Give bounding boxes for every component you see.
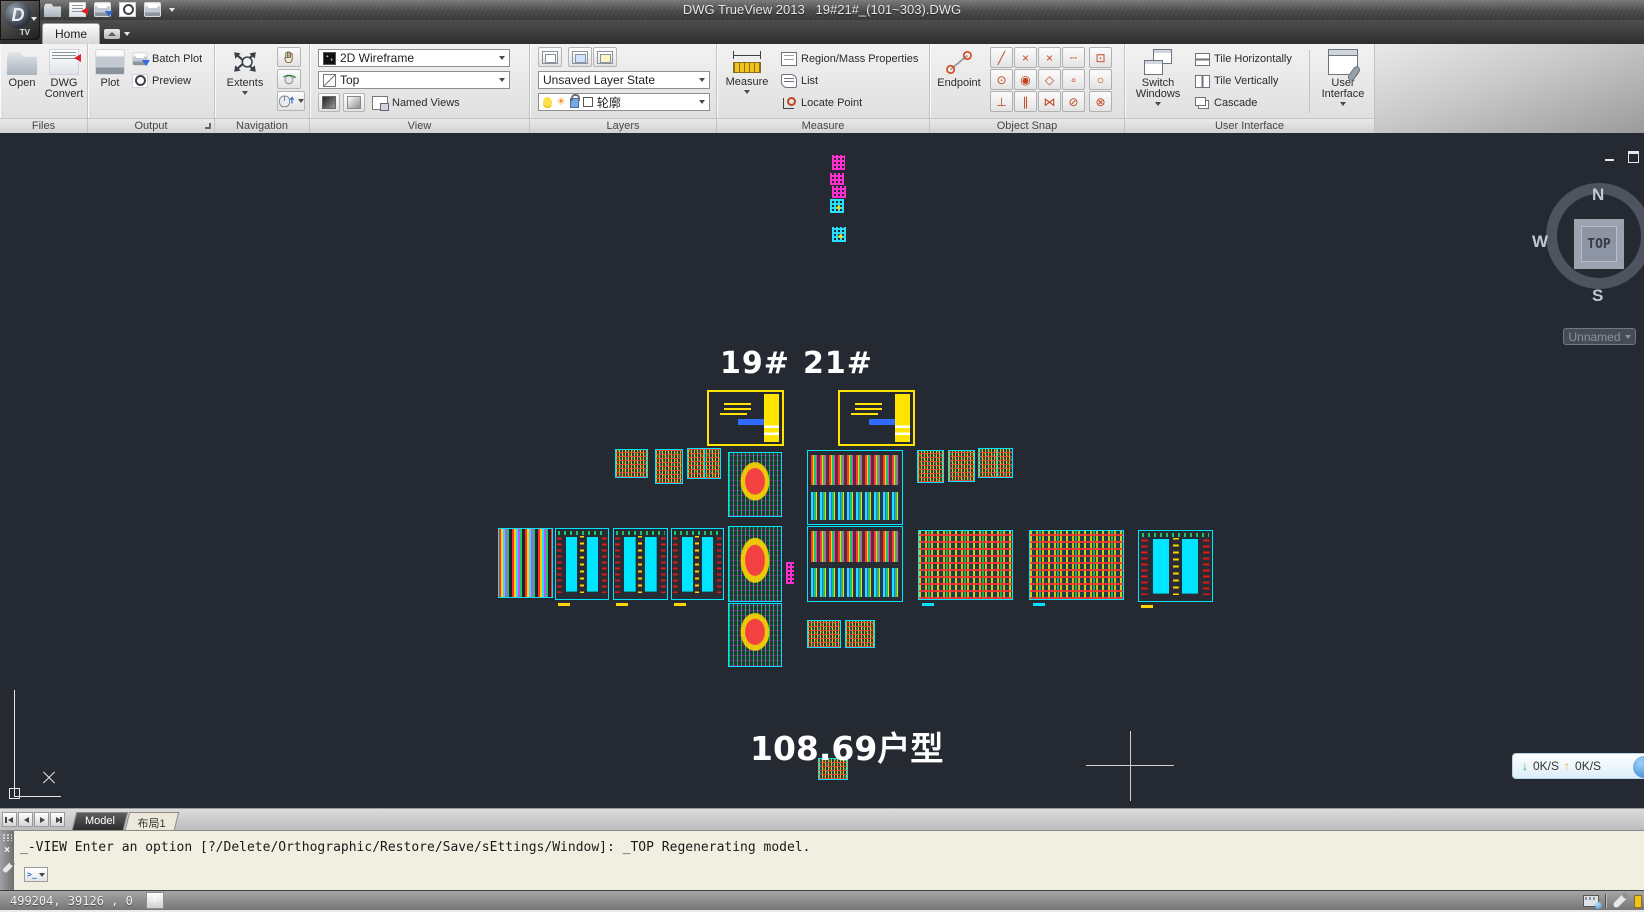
snap-midpoint[interactable]: ╱ [990, 47, 1013, 68]
panel-object-snap: Endpoint ╱××┄⊙◉◇∘⊥∥⋈⊘ ⊡○⊗ Object Snap [930, 44, 1125, 133]
command-window-grip[interactable] [0, 831, 14, 890]
chevron-down-icon [39, 873, 45, 877]
tile-horizontally-button[interactable]: Tile Horizontally [1195, 50, 1292, 68]
first-tab-button[interactable] [2, 812, 17, 827]
snap-magnet-off[interactable]: ⊗ [1089, 91, 1112, 112]
layer-state-icon [572, 51, 588, 64]
snap-tangent[interactable]: ○ [1089, 69, 1112, 90]
switch-windows-chevron-icon [1155, 102, 1161, 106]
tile-vertically-icon [1195, 75, 1210, 88]
close-command-icon[interactable] [1, 845, 13, 857]
cad-drawing [917, 450, 944, 483]
shaded-edges-view-button[interactable] [343, 93, 365, 112]
layer-on-icon [543, 97, 552, 108]
snap-extension[interactable]: ┄ [1062, 47, 1085, 68]
ribbon-state-icon [104, 29, 120, 39]
endpoint-label: Endpoint [937, 78, 980, 89]
panel-view: 2D Wireframe Top Named Views View [310, 44, 530, 133]
shaded-view-button[interactable] [318, 93, 340, 112]
unit-type-label: 108.69户型 [750, 732, 943, 765]
open-icon[interactable] [44, 2, 61, 17]
cad-drawing [671, 528, 724, 600]
window-title: DWG TrueView 2013 19#21#_(101~303).DWG [0, 2, 1644, 17]
snap-insert[interactable]: ⊡ [1089, 47, 1112, 68]
locate-point-icon [781, 96, 797, 110]
wireframe-icon [323, 52, 336, 65]
switch-windows-label: Switch Windows [1129, 78, 1187, 100]
block-21-label: 21# [803, 349, 873, 379]
ribbon-options-button[interactable] [104, 27, 138, 40]
named-view-dropdown[interactable]: Unnamed [1563, 328, 1636, 345]
zoom-scroll-button[interactable] [277, 91, 305, 111]
network-speed-overlay[interactable]: 0K/S 0K/S [1512, 753, 1644, 779]
endpoint-icon [944, 49, 974, 75]
plot-label: Plot [101, 78, 120, 89]
grip-dots-icon [2, 833, 12, 841]
panel-caption-view: View [310, 118, 529, 133]
viewcube-south[interactable]: S [1592, 287, 1603, 304]
zoom-extents-button[interactable]: Extents [221, 46, 269, 116]
tile-vertically-label: Tile Vertically [1214, 75, 1278, 87]
snap-intersection[interactable]: × [1014, 47, 1037, 68]
preview-icon [132, 74, 148, 88]
measure-label: Measure [726, 77, 769, 88]
app-menu-caret-icon [31, 17, 37, 21]
tile-horizontally-icon [1195, 53, 1210, 66]
panel-output: Plot Batch Plot Preview Output [88, 44, 215, 133]
named-views-label: Named Views [392, 97, 460, 109]
tab-model-label: Model [85, 815, 115, 827]
cad-drawing [807, 526, 903, 602]
title-bar: DWG TrueView 2013 19#21#_(101~303).DWG [0, 0, 1644, 20]
tile-horizontally-label: Tile Horizontally [1214, 53, 1292, 65]
cad-drawing [498, 528, 553, 598]
cascade-label: Cascade [1214, 97, 1257, 109]
layer-isolate-button[interactable] [593, 47, 617, 67]
layer-color-swatch [583, 97, 593, 107]
ribbon-tab-row: Home [0, 20, 1644, 44]
object-snap-grid: ╱××┄⊙◉◇∘⊥∥⋈⊘ [990, 47, 1085, 112]
list-icon [781, 74, 797, 88]
panel-divider [1309, 50, 1310, 113]
panel-layers: Unsaved Layer State ☀ 轮廓 Layers [530, 44, 717, 133]
panel-files: Open DWG Convert Files [0, 44, 88, 133]
region-icon [781, 52, 797, 66]
cad-drawing [948, 450, 975, 482]
named-views-icon [372, 96, 388, 110]
snap-geometric-center[interactable]: ◉ [1014, 69, 1037, 90]
tv-badge: TV [20, 28, 30, 37]
layer-state-button[interactable] [568, 47, 592, 67]
batch-plot-icon [132, 52, 148, 66]
minimize-drawing-button[interactable] [1603, 151, 1617, 163]
cad-drawing [832, 227, 846, 242]
status-settings-icon[interactable] [1612, 893, 1628, 909]
restore-drawing-button[interactable] [1626, 150, 1640, 162]
cad-drawing [613, 528, 668, 600]
dwg-convert-button[interactable]: DWG Convert [42, 46, 86, 116]
print-icon[interactable] [144, 2, 161, 17]
ucs-x-label [42, 771, 56, 785]
open-button[interactable]: Open [3, 46, 41, 116]
next-tab-button[interactable] [34, 812, 49, 827]
view-cube[interactable]: N W S E TOP [1546, 183, 1644, 289]
snap-quadrant[interactable]: ◇ [1038, 69, 1061, 90]
named-view-value: Unnamed [1568, 330, 1620, 344]
snap-perpendicular[interactable]: ⊥ [990, 91, 1013, 112]
command-history: _-VIEW Enter an option [?/Delete/Orthogr… [20, 840, 1634, 856]
endpoint-snap-button[interactable]: Endpoint [932, 46, 986, 116]
snap-center[interactable]: ⊙ [990, 69, 1013, 90]
viewcube-top-label: TOP [1581, 226, 1617, 262]
preview-button[interactable]: Preview [132, 72, 191, 90]
visual-style-value: 2D Wireframe [340, 51, 414, 65]
panel-navigation: Extents [215, 44, 310, 133]
crosshair-toggle-button[interactable] [146, 892, 164, 909]
batch-plot-button[interactable]: Batch Plot [132, 50, 202, 68]
previous-tab-button[interactable] [18, 812, 33, 827]
cad-drawing [707, 390, 784, 446]
object-snap-extra-column: ⊡○⊗ [1089, 47, 1112, 112]
layer-properties-button[interactable] [538, 47, 562, 67]
cad-drawing [687, 448, 721, 479]
status-bar-tray [1583, 891, 1644, 911]
viewcube-north[interactable]: N [1592, 186, 1604, 203]
quick-access-toolbar [44, 2, 175, 17]
command-window: _-VIEW Enter an option [?/Delete/Orthogr… [0, 830, 1644, 890]
tray-notification-icon[interactable] [1634, 895, 1642, 908]
cad-drawing [555, 528, 609, 600]
ucs-origin-box [9, 788, 20, 799]
pan-button[interactable] [277, 47, 301, 67]
cad-drawing [728, 603, 782, 667]
dwg-convert-label: DWG Convert [42, 78, 86, 100]
dwg-convert-icon[interactable] [69, 2, 86, 17]
user-interface-chevron-icon [1340, 102, 1346, 106]
open-label: Open [9, 78, 36, 89]
chevron-down-icon [699, 78, 705, 82]
preview-label: Preview [152, 75, 191, 87]
command-settings-icon[interactable] [2, 861, 14, 873]
view-value: Top [340, 73, 359, 87]
view-cube-icon [323, 74, 336, 87]
last-tab-button[interactable] [50, 812, 65, 827]
cad-drawing [728, 452, 782, 517]
tab-model[interactable]: Model [72, 812, 128, 830]
chevron-down-icon [1625, 335, 1631, 339]
crosshair-icon [150, 896, 160, 905]
layer-unlock-icon [570, 98, 579, 108]
network-monitor-icon[interactable] [1633, 756, 1644, 778]
panel-caption-output: Output [88, 118, 214, 133]
layer-dropdown[interactable]: ☀ 轮廓 [538, 93, 710, 111]
measure-chevron-icon [744, 90, 750, 94]
ucs-x-axis [14, 796, 61, 797]
cad-drawing [786, 562, 794, 584]
visual-style-dropdown[interactable]: 2D Wireframe [318, 49, 510, 67]
measure-ruler-icon [731, 50, 763, 74]
dwg-convert-icon [49, 49, 79, 75]
output-dialog-launcher-icon[interactable] [205, 123, 211, 129]
download-arrow-icon [1522, 759, 1528, 773]
orbit-button[interactable] [277, 69, 301, 89]
cad-drawing [832, 155, 845, 170]
tile-vertically-button[interactable]: Tile Vertically [1195, 72, 1278, 90]
ribbon-empty-area [1375, 44, 1644, 133]
panel-caption-measure: Measure [717, 118, 929, 133]
snap-none[interactable]: ⊘ [1062, 91, 1085, 112]
layer-state-dropdown[interactable]: Unsaved Layer State [538, 71, 710, 89]
prompt-icon [27, 870, 37, 879]
tab-home[interactable]: Home [42, 23, 100, 44]
tab-layout1-label: 布局1 [137, 815, 165, 831]
chevron-down-icon [499, 56, 505, 60]
cad-drawing [838, 390, 915, 446]
cad-drawing [830, 199, 844, 213]
user-interface-button[interactable]: User Interface [1315, 46, 1371, 116]
chevron-down-icon [499, 78, 505, 82]
snap-node[interactable]: ∘ [1062, 69, 1085, 90]
user-interface-icon [1328, 49, 1358, 75]
divider [1605, 894, 1606, 908]
plot-printer-icon [95, 49, 125, 75]
panel-caption-layers: Layers [530, 118, 716, 133]
list-button[interactable]: List [781, 72, 818, 90]
plot-button[interactable]: Plot [92, 46, 128, 116]
region-label: Region/Mass Properties [801, 53, 918, 65]
true view-logo: D [5, 2, 31, 28]
cad-drawing [807, 620, 841, 648]
crosshair-vertical [1130, 731, 1131, 801]
block-19-label: 19# [720, 349, 790, 379]
locate-point-button[interactable]: Locate Point [781, 94, 862, 112]
extents-label: Extents [227, 78, 264, 89]
batch-plot-label: Batch Plot [152, 53, 202, 65]
region-mass-properties-button[interactable]: Region/Mass Properties [781, 50, 918, 68]
application-button[interactable]: D TV [0, 0, 40, 40]
layer-thaw-icon: ☀ [556, 97, 566, 108]
list-label: List [801, 75, 818, 87]
snap-nearest[interactable]: ⋈ [1038, 91, 1061, 112]
drawing-canvas[interactable]: 19# 21# 108.69户型 N W S E TOP Unnamed [0, 133, 1644, 808]
extents-icon [230, 49, 260, 75]
status-bar: 499204, 39126 , 0 [0, 890, 1644, 910]
plot-icon[interactable] [94, 2, 111, 17]
named-views-button[interactable]: Named Views [372, 94, 460, 112]
cad-drawing [1029, 530, 1124, 600]
dark-cube-icon [322, 96, 336, 109]
preview-icon[interactable] [119, 2, 136, 17]
locate-point-label: Locate Point [801, 97, 862, 109]
current-layer-name: 轮廓 [597, 94, 621, 111]
switch-windows-icon [1143, 49, 1173, 75]
panel-measure: Measure Region/Mass Properties List Loca… [717, 44, 930, 133]
viewcube-top-face[interactable]: TOP [1574, 219, 1624, 269]
cad-drawing [978, 448, 1013, 478]
panel-user-interface: Switch Windows Tile Horizontally Tile Ve… [1125, 44, 1375, 133]
cad-drawing [830, 173, 844, 185]
switch-windows-button[interactable]: Switch Windows [1129, 46, 1187, 116]
upload-arrow-icon [1564, 759, 1570, 773]
cad-drawing [1138, 530, 1213, 602]
cad-drawing [655, 449, 683, 484]
hardware-acceleration-icon[interactable] [1583, 895, 1599, 907]
cad-drawing [918, 530, 1013, 600]
mouse-zoom-icon [278, 94, 296, 108]
qat-customize-chevron-icon[interactable] [169, 8, 175, 12]
cascade-button[interactable]: Cascade [1195, 94, 1257, 112]
light-cube-icon [347, 96, 361, 109]
ribbon: Open DWG Convert Files Plot Batch Plot P… [0, 44, 1644, 133]
user-interface-label: User Interface [1315, 78, 1371, 100]
panel-caption-navigation: Navigation [215, 118, 309, 133]
chevron-down-icon [699, 100, 705, 104]
pan-hand-icon [280, 49, 298, 65]
layer-state-value: Unsaved Layer State [543, 73, 655, 87]
command-prompt-button[interactable] [24, 867, 48, 882]
layer-properties-icon [542, 51, 558, 64]
layout-tab-bar: Model 布局1 [0, 808, 1644, 830]
open-folder-icon [7, 49, 37, 75]
ucs-y-axis [14, 690, 15, 797]
command-input-row[interactable] [20, 865, 1634, 885]
cascade-icon [1195, 97, 1206, 106]
coordinates-display: 499204, 39126 , 0 [10, 894, 133, 908]
cad-drawing [807, 450, 903, 525]
cad-drawing [832, 186, 846, 198]
crosshair-horizontal [1086, 765, 1174, 766]
cad-drawing [845, 620, 875, 648]
layer-isolate-icon [597, 51, 613, 64]
orbit-icon [280, 71, 298, 87]
snap-parallel[interactable]: ∥ [1014, 91, 1037, 112]
panel-caption-user-interface: User Interface [1125, 118, 1374, 133]
upload-speed: 0K/S [1575, 759, 1601, 773]
snap-apparent-intersection[interactable]: × [1038, 47, 1061, 68]
zoom-chevron-icon [298, 99, 304, 103]
download-speed: 0K/S [1533, 759, 1559, 773]
viewcube-west[interactable]: W [1532, 233, 1548, 250]
measure-button[interactable]: Measure [719, 46, 775, 116]
tab-layout1[interactable]: 布局1 [125, 812, 180, 830]
dwg-trueview-window: DWG TrueView 2013 19#21#_(101~303).DWG D… [0, 0, 1644, 912]
extents-chevron-icon [242, 91, 248, 95]
panel-caption-object-snap: Object Snap [930, 118, 1124, 133]
chevron-down-icon [124, 32, 130, 36]
cad-drawing [728, 526, 782, 602]
panel-caption-files: Files [0, 118, 87, 133]
view-dropdown[interactable]: Top [318, 71, 510, 89]
cad-drawing [615, 449, 648, 478]
